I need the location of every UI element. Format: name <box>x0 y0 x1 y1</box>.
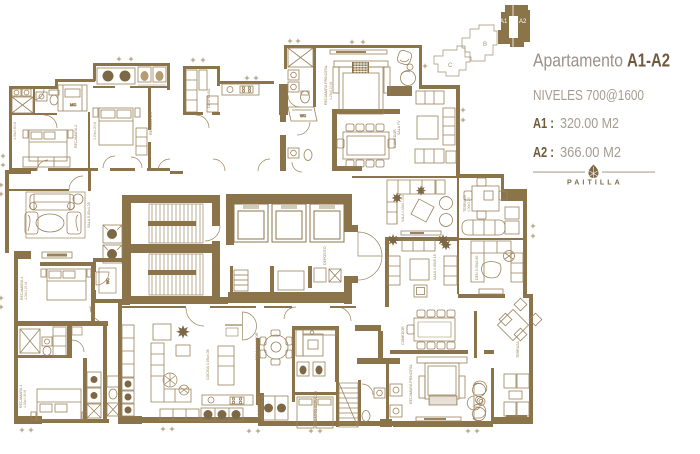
svg-text:RECAMARA 2: RECAMARA 2 <box>74 125 78 148</box>
svg-text:DEN 3.05x3.60: DEN 3.05x3.60 <box>475 256 479 280</box>
svg-text:SALA 4.05x5.15: SALA 4.05x5.15 <box>433 254 437 280</box>
svg-text:NIVELES 700@1600: NIVELES 700@1600 <box>533 88 644 104</box>
svg-text:RECAMARA PRINCIPAL: RECAMARA PRINCIPAL <box>324 65 328 105</box>
svg-text:COMEDOR: COMEDOR <box>401 326 405 345</box>
svg-text:PAITILLA: PAITILLA <box>567 180 623 187</box>
svg-text:WC: WC <box>106 278 110 284</box>
svg-text:366.00 M2: 366.00 M2 <box>560 144 621 161</box>
svg-text:DESAYUNADOR: DESAYUNADOR <box>255 332 259 360</box>
svg-text:A1: A1 <box>500 19 508 25</box>
svg-text:SALA 4.05x5.15 M: SALA 4.05x5.15 M <box>401 194 405 222</box>
svg-text:SALA 5.80x4.35: SALA 5.80x4.35 <box>87 202 91 228</box>
svg-text:RECAMARA PRINCIPAL: RECAMARA PRINCIPAL <box>409 364 413 404</box>
svg-text:A1 :: A1 : <box>533 115 554 132</box>
svg-text:TERRAZA: TERRAZA <box>516 341 520 358</box>
svg-text:Apartamento: Apartamento <box>533 51 623 71</box>
svg-text:DESPENSA: DESPENSA <box>207 88 211 108</box>
svg-text:RECAMARA 3: RECAMARA 3 <box>149 112 153 135</box>
svg-text:COCINA 3.05x4.05: COCINA 3.05x4.05 <box>206 349 210 380</box>
svg-text:MC: MC <box>70 102 76 107</box>
svg-text:3.20x4.20 M: 3.20x4.20 M <box>93 122 97 140</box>
svg-text:4.85x4.05 M: 4.85x4.05 M <box>23 390 27 408</box>
svg-text:B: B <box>483 42 487 48</box>
svg-text:4.02x3.23 M: 4.02x3.23 M <box>24 282 28 300</box>
svg-text:A2: A2 <box>519 19 527 25</box>
svg-text:WC: WC <box>300 114 306 118</box>
svg-text:A1-A2: A1-A2 <box>627 51 670 71</box>
svg-text:DEPOSITO: DEPOSITO <box>323 246 327 265</box>
svg-text:C: C <box>448 63 453 69</box>
svg-text:320.00 M2: 320.00 M2 <box>560 115 619 132</box>
svg-text:4.00x3.25: 4.00x3.25 <box>467 197 471 212</box>
svg-text:SALA TV: SALA TV <box>397 120 401 135</box>
svg-text:4.25x5.10 M: 4.25x5.10 M <box>329 82 333 100</box>
svg-text:4.05x3.60 M: 4.05x3.60 M <box>13 122 17 140</box>
svg-text:A2 :: A2 : <box>533 144 554 161</box>
svg-text:CUARTO SERVICIO: CUARTO SERVICIO <box>314 391 318 424</box>
svg-text:LAVANDERIA: LAVANDERIA <box>257 395 261 418</box>
